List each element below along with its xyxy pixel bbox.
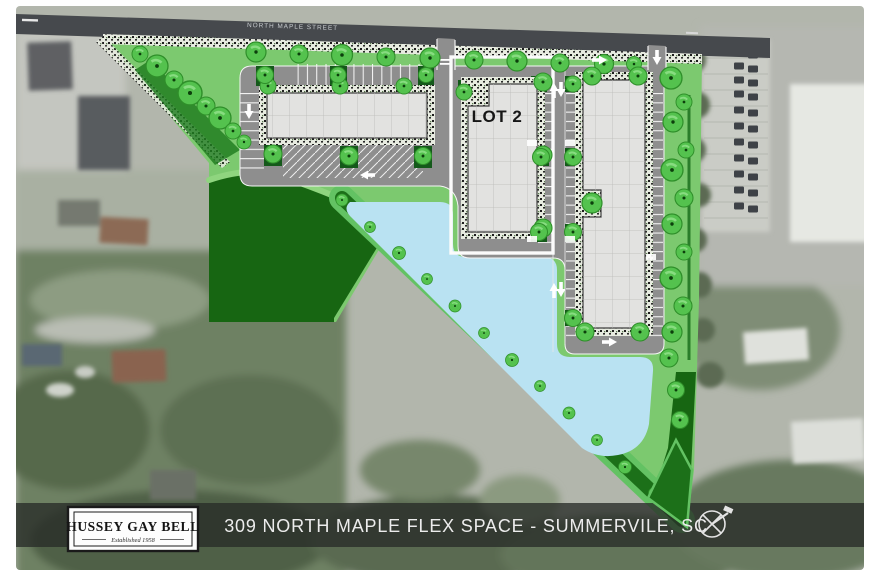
site-plan-image: NORTH MAPLE STREET bbox=[0, 0, 880, 588]
logo-name: HUSSEY GAY BELL bbox=[66, 519, 200, 534]
building-1 bbox=[259, 85, 435, 145]
plan-title: 309 NORTH MAPLE FLEX SPACE - SUMMERVILE,… bbox=[224, 516, 708, 536]
logo-tagline: Established 1958 bbox=[110, 537, 155, 544]
lot2-label: LOT 2 bbox=[472, 107, 523, 126]
hussey-gay-bell-logo: HUSSEY GAY BELL Established 1958 bbox=[66, 507, 200, 551]
